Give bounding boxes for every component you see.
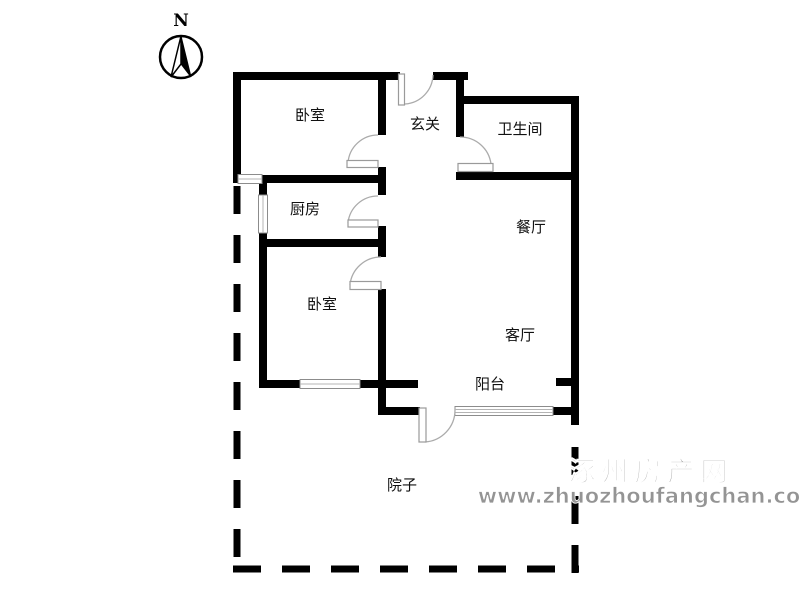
wall-top-left bbox=[233, 72, 400, 80]
wall-mid-seg4 bbox=[378, 289, 386, 415]
wall-bathroom-top bbox=[460, 96, 579, 104]
floor-plan-page: N bbox=[0, 0, 800, 600]
windows bbox=[238, 175, 553, 416]
watermark: 涿州房产网 www.zhuozhoufangchan.com bbox=[478, 457, 800, 508]
watermark-url: www.zhuozhoufangchan.com bbox=[478, 484, 800, 508]
wall-balcony-bottom-right bbox=[553, 407, 571, 415]
wall-mid-seg1 bbox=[378, 72, 386, 135]
room-label-bathroom: 卫生间 bbox=[497, 120, 542, 138]
compass: N bbox=[160, 11, 202, 78]
room-label-living: 客厅 bbox=[505, 326, 535, 344]
door-kitchen bbox=[348, 196, 378, 227]
door-bedroom1 bbox=[347, 135, 378, 168]
compass-needle-right-icon bbox=[181, 36, 191, 77]
room-label-balcony: 阳台 bbox=[475, 375, 505, 393]
wall-left-bedroom1 bbox=[233, 72, 241, 183]
room-label-bedroom2: 卧室 bbox=[307, 295, 337, 313]
room-label-kitchen: 厨房 bbox=[290, 200, 320, 218]
wall-balcony-stub-right bbox=[556, 378, 571, 386]
floor-plan-canvas: N bbox=[0, 0, 800, 600]
door-bathroom bbox=[458, 137, 493, 172]
door-bedroom2 bbox=[350, 257, 381, 290]
window-bedroom2-bottom bbox=[300, 380, 360, 389]
room-label-hallway: 玄关 bbox=[410, 115, 440, 133]
window-balcony-bottom bbox=[455, 407, 553, 416]
window-kitchen-top bbox=[238, 175, 262, 184]
wall-right bbox=[571, 96, 579, 425]
wall-balcony-stub-left bbox=[386, 380, 418, 388]
wall-balcony-bottom-left bbox=[386, 407, 420, 415]
door-entrance bbox=[399, 74, 434, 105]
compass-needle-left-icon bbox=[171, 36, 181, 77]
room-label-bedroom1: 卧室 bbox=[295, 106, 325, 124]
wall-bedroom2-left bbox=[259, 247, 267, 388]
window-kitchen-left bbox=[259, 195, 268, 233]
compass-north-label: N bbox=[173, 11, 189, 31]
room-label-yard: 院子 bbox=[387, 476, 417, 494]
door-balcony bbox=[419, 408, 455, 442]
room-label-dining: 餐厅 bbox=[516, 218, 546, 236]
wall-bathroom-bottom bbox=[456, 172, 579, 180]
room-labels: 卧室 玄关 卫生间 厨房 餐厅 卧室 客厅 阳台 院子 bbox=[290, 106, 546, 494]
wall-bathroom-left bbox=[456, 72, 464, 137]
wall-kitchen-bottom bbox=[259, 239, 386, 247]
